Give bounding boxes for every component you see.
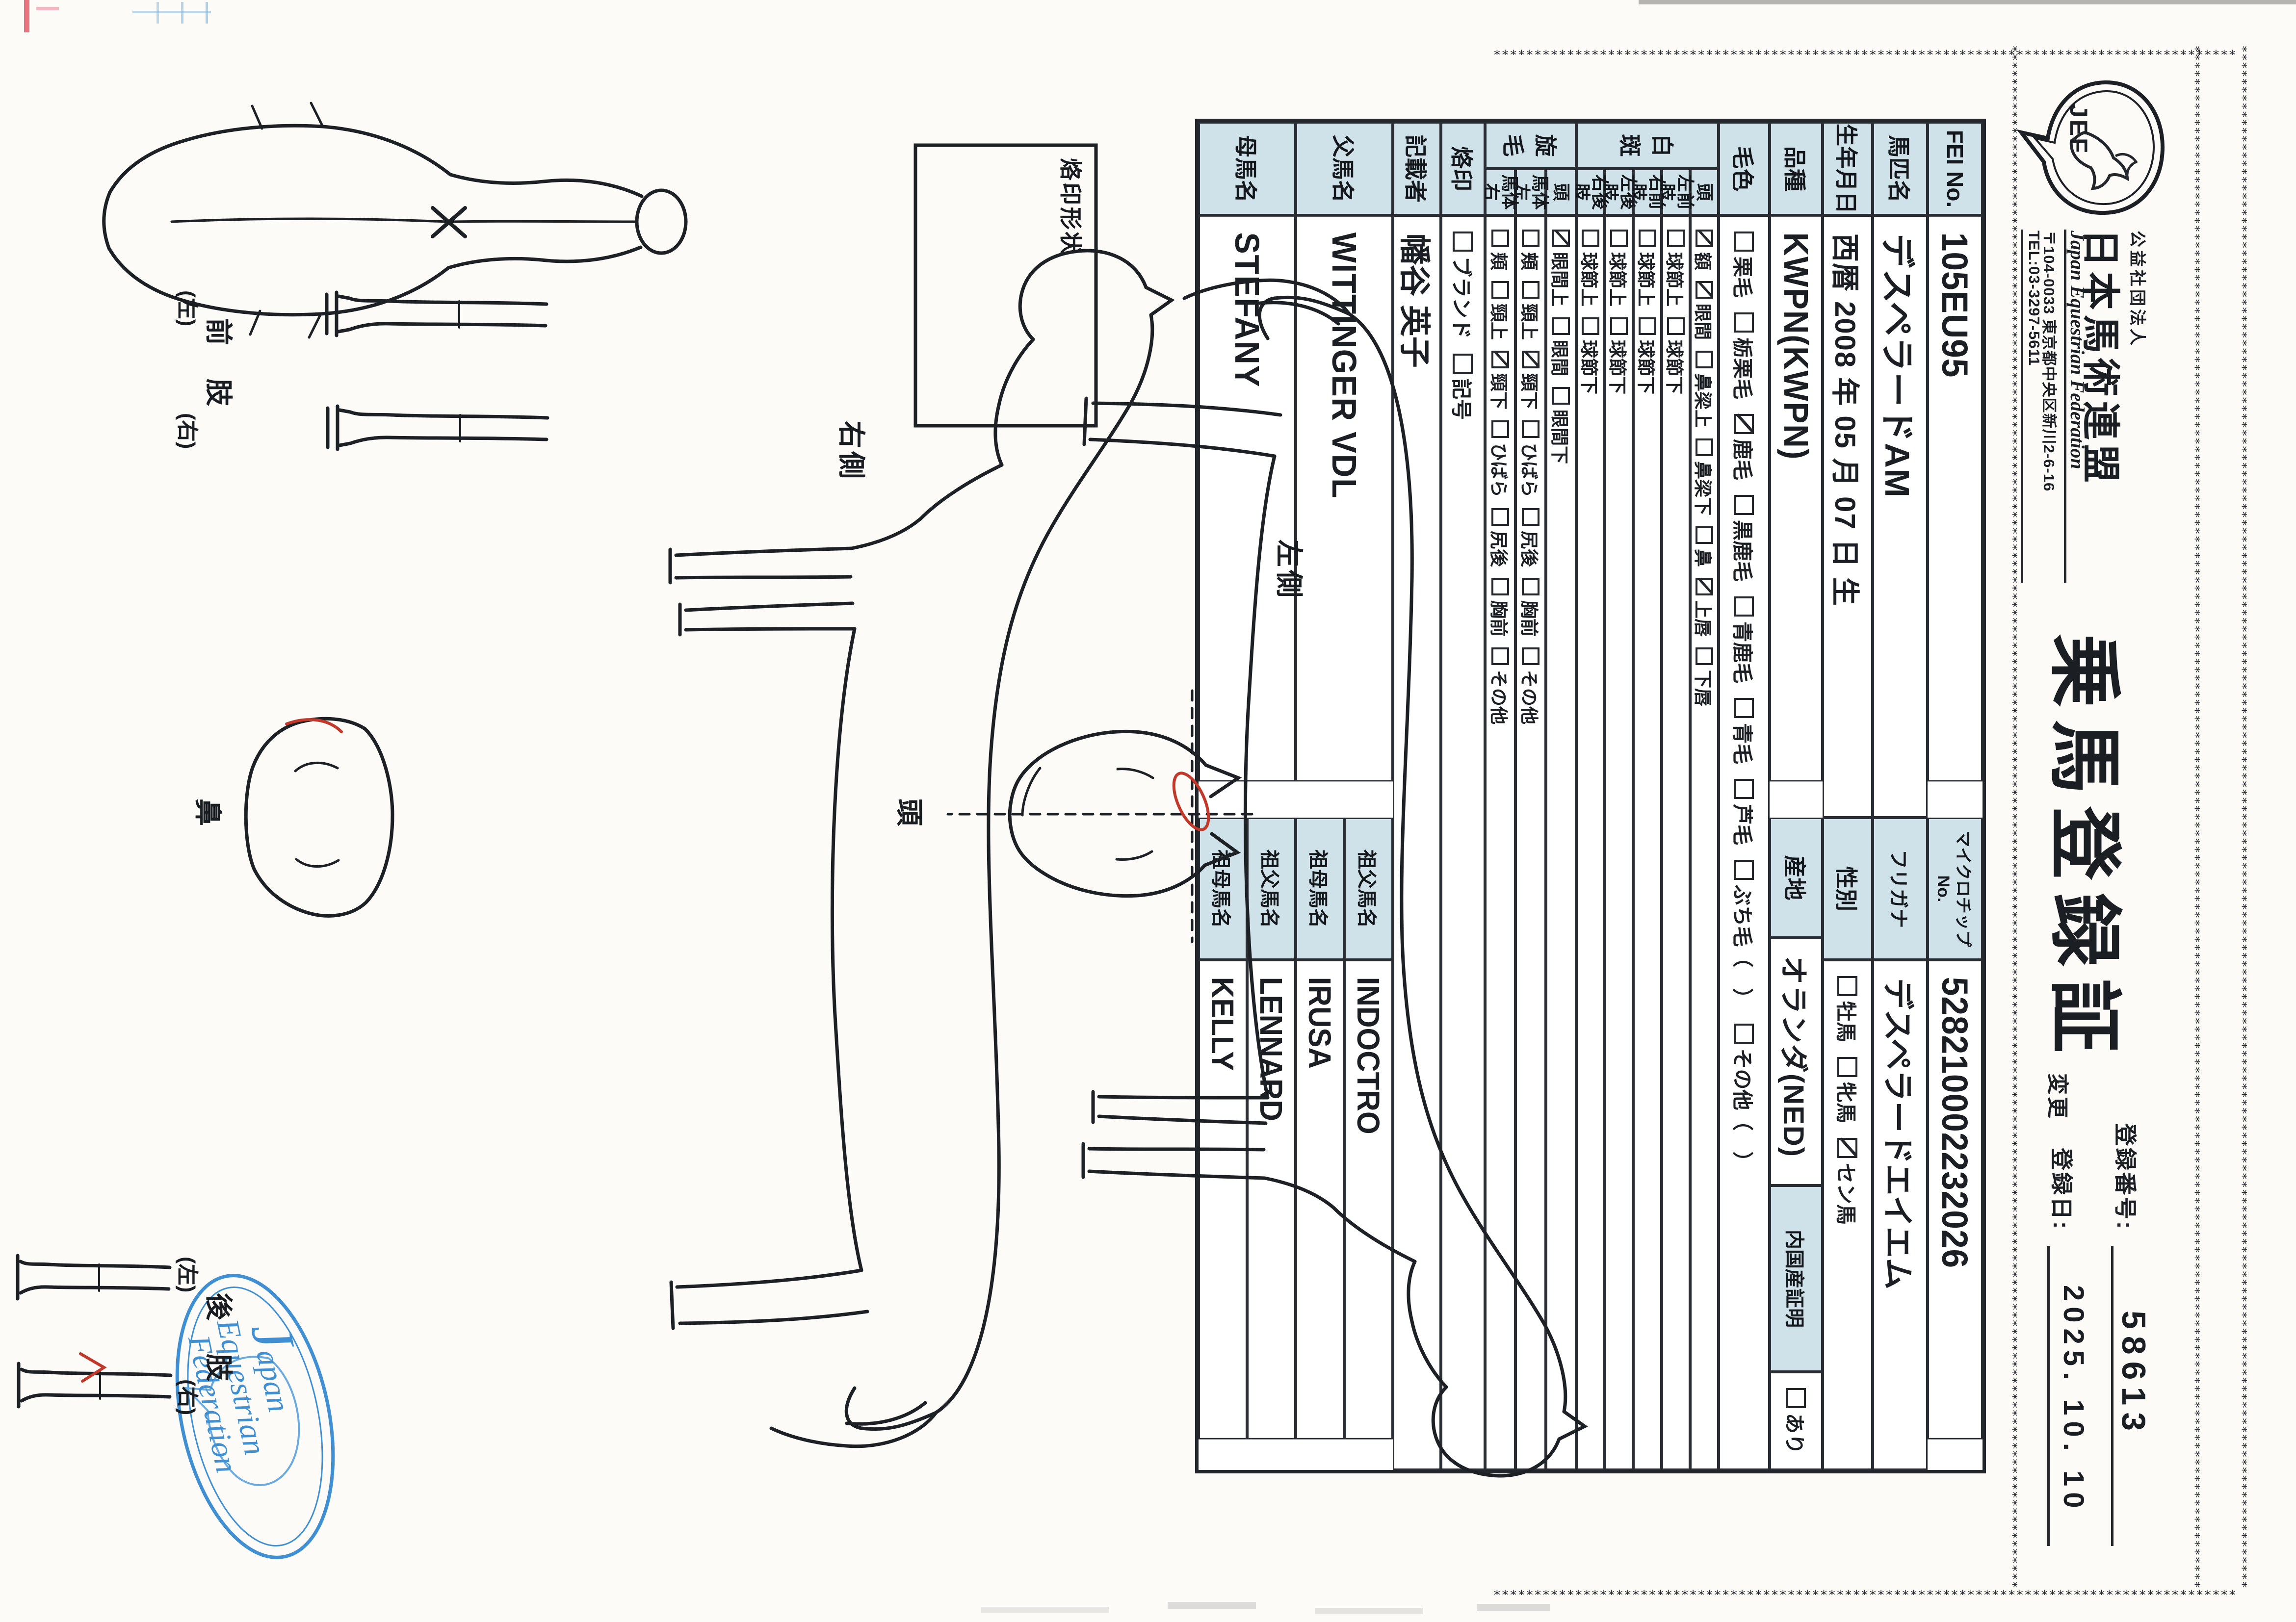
checkbox-option-label: 鼻梁下 — [1691, 461, 1718, 515]
wm-right-fore-options: 球節上球節下 — [1633, 215, 1662, 1470]
unchecked-checkbox-icon — [1582, 230, 1599, 247]
unchecked-checkbox-icon — [1838, 1057, 1858, 1077]
checkbox-option-label: 頸上 — [1517, 304, 1544, 340]
registration-date-label: 登録日: — [2047, 1148, 2079, 1231]
foreleg-pair — [327, 292, 548, 449]
checkbox-option: 尻後 — [1487, 508, 1513, 567]
unchecked-checkbox-icon — [1639, 230, 1656, 247]
muzzle-red-mark — [287, 720, 341, 732]
furigana-label: フリガナ — [1873, 818, 1928, 960]
checkbox-option-label: 鼻梁上 — [1691, 373, 1718, 428]
dam-label: 母馬名 — [1199, 122, 1296, 215]
horse-info-table: FEI No. 105EU95 マイクロチップNo. 5282100022320… — [1195, 119, 1986, 1473]
sire-dam-value: IRUSA — [1296, 960, 1344, 1440]
checked-checkbox-icon — [1696, 281, 1713, 299]
checkbox-option: 頸下 — [1517, 351, 1544, 410]
unchecked-checkbox-icon — [1453, 354, 1473, 374]
microchip-label: マイクロチップNo. — [1928, 818, 1983, 960]
jef-blue-stamp: Japan Equestrian Federation — [154, 1261, 357, 1572]
unchecked-checkbox-icon — [1696, 351, 1713, 368]
registration-date-underline — [2047, 1246, 2050, 1546]
brand-shape-label: 烙印形状 — [1056, 158, 1088, 256]
checkbox-option-label: あり — [1781, 1413, 1811, 1454]
checkbox-option: 球節上 — [1606, 230, 1632, 307]
checkbox-option-label: 頬 — [1487, 252, 1513, 270]
checkbox-option-label: 芦毛 — [1729, 804, 1759, 845]
dorsal-x-mark — [433, 208, 465, 236]
recorder-value: 幡谷 英子 — [1393, 215, 1441, 1470]
checkbox-option-label: その他 — [1517, 670, 1544, 724]
org-tel: TEL:03-3297-5611 — [2025, 231, 2043, 366]
unchecked-checkbox-icon — [1838, 976, 1858, 996]
checkbox-option: 頬 — [1487, 230, 1513, 270]
checkbox-option: ひばら — [1517, 420, 1544, 497]
unchecked-checkbox-icon — [1639, 317, 1656, 335]
unchecked-checkbox-icon — [1734, 779, 1754, 799]
checkbox-option-label: その他 — [1487, 670, 1513, 724]
sire-sire-label: 祖父馬名 — [1344, 818, 1393, 960]
wm-left-hind-options: 球節上球節下 — [1605, 215, 1633, 1470]
unchecked-checkbox-icon — [1522, 420, 1539, 438]
whorl-body-left-options: 頬頸上頸下ひばら尻後胸前その他 — [1515, 215, 1546, 1470]
org-name-en: Japan Equestrian Federation — [2066, 231, 2089, 469]
whorl-body-right-label: 馬体右 — [1485, 169, 1515, 215]
checkbox-option: 胸前 — [1517, 578, 1544, 637]
head-view-label: 頭 — [891, 798, 931, 829]
checkbox-option: 眼間上 — [1548, 230, 1574, 307]
sire-label: 父馬名 — [1296, 122, 1393, 215]
horse-name-label: 馬匹名 — [1873, 122, 1928, 215]
svg-text:Japan: Japan — [238, 1316, 320, 1416]
certificate-page: ****************************************… — [0, 0, 2296, 1622]
letterhead: JEF 公益社団法人 日本馬術連盟 Japan Equestrian Feder… — [2011, 74, 2173, 613]
checkbox-option: 上唇 — [1691, 578, 1718, 637]
checkbox-option: 芦毛 — [1729, 779, 1759, 845]
checkbox-option-label: 球節上 — [1634, 252, 1661, 307]
checkbox-option: 栗毛 — [1729, 232, 1759, 298]
unchecked-checkbox-icon — [1522, 230, 1539, 247]
checkbox-option-label: 球節下 — [1663, 340, 1689, 394]
scanned-certificate: ****************************************… — [0, 0, 2296, 1622]
checkbox-option-label: 眼間下 — [1548, 410, 1574, 464]
foreleg-right-paren: (右) — [174, 413, 205, 449]
unchecked-checkbox-icon — [1696, 647, 1713, 665]
checkbox-option: 記号 — [1448, 354, 1478, 420]
whorl-body-left-label: 馬体左 — [1515, 169, 1546, 215]
origin-label: 産地 — [1770, 818, 1823, 938]
checkbox-option-label: 額 — [1691, 252, 1718, 270]
certificate-title: 乗馬登録証 — [2037, 634, 2144, 1065]
checked-checkbox-icon — [1838, 1138, 1858, 1158]
unchecked-checkbox-icon — [1491, 230, 1509, 247]
unchecked-checkbox-icon — [1491, 281, 1509, 299]
furigana-value: デスペラードエイエム — [1873, 960, 1928, 1470]
unchecked-checkbox-icon — [1522, 578, 1539, 595]
hindleg-right-paren: (右) — [174, 1379, 205, 1415]
checkbox-option: 眼間 — [1548, 317, 1574, 376]
unchecked-checkbox-icon — [1734, 596, 1754, 617]
checkbox-option-label: ひばら — [1487, 443, 1513, 497]
domestic-option: あり — [1770, 1372, 1823, 1470]
white-markings-label: 白斑 — [1576, 122, 1719, 169]
birth-value: 西暦 2008 年 05 月 07 日 生 — [1823, 215, 1873, 818]
checked-checkbox-icon — [1491, 351, 1509, 368]
checkbox-option: セン馬 — [1833, 1138, 1863, 1225]
coat-color-options: 栗毛栃栗毛鹿毛黒鹿毛青鹿毛青毛芦毛ぶち毛（ ）その他（ ） — [1719, 215, 1770, 1470]
ornament-line-top: ****************************************… — [2235, 45, 2247, 1589]
checkbox-option: 球節上 — [1663, 230, 1689, 307]
checkbox-option-label: 栗毛 — [1729, 257, 1759, 298]
checkbox-option-label: 頬 — [1517, 252, 1544, 270]
hindleg-label: 後 肢 — [201, 1293, 240, 1384]
checkbox-option: あり — [1781, 1388, 1811, 1454]
unchecked-checkbox-icon — [1522, 647, 1539, 665]
svg-text:JEF: JEF — [2065, 104, 2092, 155]
unchecked-checkbox-icon — [1734, 860, 1754, 880]
horse-name-value: デスペラードAM — [1873, 215, 1928, 818]
sex-label: 性別 — [1823, 818, 1873, 960]
wm-right-hind-label: 右後肢 — [1576, 169, 1605, 215]
checkbox-option: 球節下 — [1577, 317, 1604, 394]
registration-number-underline — [2111, 1246, 2113, 1546]
unchecked-checkbox-icon — [1491, 420, 1509, 438]
origin-value: オランダ(NED) — [1770, 938, 1823, 1185]
whorl-label: 旋毛 — [1485, 122, 1576, 169]
unchecked-checkbox-icon — [1667, 317, 1685, 335]
checkbox-option-label: 鼻 — [1691, 549, 1718, 567]
brand-label: 烙印 — [1441, 122, 1485, 215]
checkbox-option-label: セン馬 — [1833, 1163, 1863, 1225]
checkbox-option-label: 眼間 — [1691, 304, 1718, 340]
checkbox-option: ひばら — [1487, 420, 1513, 497]
dam-dam-value: KELLY — [1199, 960, 1247, 1440]
ornament-line-left: ****************************************… — [1494, 43, 2236, 55]
checkbox-option-label: 胸前 — [1487, 600, 1513, 637]
recorder-label: 記載者 — [1393, 122, 1441, 215]
checkbox-option-label: 球節下 — [1606, 340, 1632, 394]
checkbox-option-label: ブランド — [1448, 257, 1478, 339]
wm-left-fore-options: 球節上球節下 — [1662, 215, 1690, 1470]
checkbox-option-label: 頸下 — [1487, 373, 1513, 410]
registration-number-label: 登録番号: — [2111, 1123, 2143, 1231]
microchip-value: 528210002232026 — [1928, 960, 1983, 1440]
checkbox-option-label: 尻後 — [1487, 531, 1513, 567]
checkbox-option: 牡馬 — [1833, 976, 1863, 1042]
sire-dam-label: 祖母馬名 — [1296, 818, 1344, 960]
foreleg-label: 前 肢 — [201, 318, 240, 409]
domestic-label: 内国産証明 — [1770, 1185, 1823, 1372]
checkbox-option: その他 — [1487, 647, 1513, 724]
checkbox-option: ブランド — [1448, 232, 1478, 339]
hindleg-left-paren: (左) — [174, 1257, 205, 1292]
checkbox-option: 黒鹿毛 — [1729, 495, 1759, 582]
unchecked-checkbox-icon — [1786, 1388, 1806, 1408]
checkbox-option-label: 上唇 — [1691, 600, 1718, 637]
dam-value: STEFANY — [1199, 215, 1296, 781]
unchecked-checkbox-icon — [1610, 230, 1628, 247]
checkbox-option-label: 球節下 — [1634, 340, 1661, 394]
whorl-body-right-options: 頬頸上頸下ひばら尻後胸前その他 — [1485, 215, 1515, 1470]
foreleg-left-paren: (左) — [174, 290, 205, 326]
checkbox-option-label: 球節下 — [1577, 340, 1604, 394]
ornament-line-header-top: ****************************************… — [2188, 45, 2200, 1589]
checkbox-option: 額 — [1691, 230, 1718, 270]
fei-label: FEI No. — [1928, 122, 1983, 215]
muzzle-view-label: 鼻 — [190, 798, 230, 829]
checkbox-option-label: その他（ ） — [1729, 1049, 1759, 1172]
checkbox-option: 鼻梁下 — [1691, 438, 1718, 515]
checkbox-option: 青鹿毛 — [1729, 596, 1759, 683]
checkbox-option-label: 下唇 — [1691, 670, 1718, 706]
registration-date: 2025. 10. 10 — [2057, 1285, 2090, 1514]
unchecked-checkbox-icon — [1491, 578, 1509, 595]
checkbox-option: 球節下 — [1663, 317, 1689, 394]
whorl-head-label: 頭 — [1546, 169, 1576, 215]
dam-sire-label: 祖父馬名 — [1247, 818, 1296, 960]
unchecked-checkbox-icon — [1734, 495, 1754, 515]
right-side-horse-outline — [670, 251, 1172, 1446]
right-side-label: 右側 — [834, 421, 873, 482]
checkbox-option: 尻後 — [1517, 508, 1544, 567]
dam-sire-value: LENNARD — [1247, 960, 1296, 1440]
breed-label: 品種 — [1770, 122, 1823, 215]
unchecked-checkbox-icon — [1734, 312, 1754, 333]
coat-color-label: 毛色 — [1719, 122, 1770, 215]
checkbox-option-label: 青毛 — [1729, 723, 1759, 764]
checked-checkbox-icon — [1522, 351, 1539, 368]
unchecked-checkbox-icon — [1734, 698, 1754, 718]
letterhead-rule-top — [2064, 230, 2066, 583]
checkbox-option: ぶち毛（ ） — [1729, 860, 1759, 1008]
checkbox-option: 鹿毛 — [1729, 414, 1759, 480]
checkbox-option-label: 球節上 — [1577, 252, 1604, 307]
checked-checkbox-icon — [1696, 230, 1713, 247]
checkbox-option-label: ひばら — [1517, 443, 1544, 497]
checkbox-option: 頸下 — [1487, 351, 1513, 410]
checkbox-option-label: 球節上 — [1606, 252, 1632, 307]
unchecked-checkbox-icon — [1522, 508, 1539, 526]
checkbox-option-label: 眼間上 — [1548, 252, 1574, 307]
checkbox-option: 頬 — [1517, 230, 1544, 270]
registration-number: 58613 — [2114, 1311, 2153, 1438]
unchecked-checkbox-icon — [1734, 232, 1754, 252]
checkbox-option: 球節下 — [1634, 317, 1661, 394]
letterhead-rule-bottom — [2021, 230, 2023, 583]
checkbox-option: 頸上 — [1487, 281, 1513, 340]
brand-options: ブランド記号 — [1441, 215, 1485, 1470]
checked-checkbox-icon — [1552, 230, 1570, 247]
hindleg-pair — [18, 1256, 171, 1407]
whorl-head-options: 眼間上眼間眼間下 — [1546, 215, 1576, 1470]
checkbox-option-label: 眼間 — [1548, 340, 1574, 376]
change-label: 変更 — [2044, 1073, 2075, 1120]
unchecked-checkbox-icon — [1491, 647, 1509, 665]
checkbox-option-label: 球節上 — [1663, 252, 1689, 307]
sire-value: WITTINGER VDL — [1296, 215, 1393, 781]
checkbox-option: 球節下 — [1606, 317, 1632, 394]
checkbox-option-label: ぶち毛（ ） — [1729, 885, 1759, 1008]
checkbox-option: その他 — [1517, 647, 1544, 724]
unchecked-checkbox-icon — [1453, 232, 1473, 252]
fei-value: 105EU95 — [1928, 215, 1983, 781]
unchecked-checkbox-icon — [1491, 508, 1509, 526]
checkbox-option-label: 鹿毛 — [1729, 439, 1759, 480]
checkbox-option-label: 青鹿毛 — [1729, 621, 1759, 683]
breed-value: KWPN(KWPN) — [1770, 215, 1823, 781]
checked-checkbox-icon — [1696, 578, 1713, 595]
unchecked-checkbox-icon — [1552, 387, 1570, 405]
sire-sire-value: INDOCTRO — [1344, 960, 1393, 1440]
muzzle-view — [246, 719, 392, 916]
checkbox-option: 鼻 — [1691, 526, 1718, 567]
checked-checkbox-icon — [1734, 414, 1754, 434]
birth-label: 生年月日 — [1823, 122, 1873, 215]
unchecked-checkbox-icon — [1582, 317, 1599, 335]
wm-head-options: 額眼間鼻梁上鼻梁下鼻上唇下唇 — [1690, 215, 1719, 1470]
checkbox-option: 牝馬 — [1833, 1057, 1863, 1123]
checkbox-option-label: 栃栗毛 — [1729, 337, 1759, 399]
checkbox-option: 鼻梁上 — [1691, 351, 1718, 428]
unchecked-checkbox-icon — [1696, 526, 1713, 544]
jef-logo: JEF — [2016, 74, 2168, 221]
checkbox-option-label: 牡馬 — [1833, 1001, 1863, 1042]
checkbox-option: 球節上 — [1634, 230, 1661, 307]
hindleg-red-mark — [80, 1354, 104, 1381]
checkbox-option: 頸上 — [1517, 281, 1544, 340]
checkbox-option-label: 牝馬 — [1833, 1082, 1863, 1123]
unchecked-checkbox-icon — [1734, 1024, 1754, 1044]
checkbox-option: 眼間 — [1691, 281, 1718, 340]
unchecked-checkbox-icon — [1610, 317, 1628, 335]
checkbox-option-label: 記号 — [1448, 379, 1478, 420]
unchecked-checkbox-icon — [1522, 281, 1539, 299]
checkbox-option: 眼間下 — [1548, 387, 1574, 464]
wm-right-hind-options: 球節上球節下 — [1576, 215, 1605, 1470]
unchecked-checkbox-icon — [1667, 230, 1685, 247]
checkbox-option: その他（ ） — [1729, 1024, 1759, 1172]
unchecked-checkbox-icon — [1696, 438, 1713, 456]
checkbox-option-label: 尻後 — [1517, 531, 1544, 567]
checkbox-option: 栃栗毛 — [1729, 312, 1759, 399]
checkbox-option-label: 黒鹿毛 — [1729, 520, 1759, 582]
checkbox-option-label: 胸前 — [1517, 600, 1544, 637]
checkbox-option: 下唇 — [1691, 647, 1718, 706]
checkbox-option: 球節上 — [1577, 230, 1604, 307]
checkbox-option: 青毛 — [1729, 698, 1759, 764]
checkbox-option: 胸前 — [1487, 578, 1513, 637]
checkbox-option-label: 頸上 — [1487, 304, 1513, 340]
left-side-label: 左側 — [1271, 540, 1311, 600]
ornament-line-right: ****************************************… — [1494, 1583, 2236, 1595]
dam-dam-label: 祖母馬名 — [1199, 818, 1247, 960]
unchecked-checkbox-icon — [1552, 317, 1570, 335]
checkbox-option-label: 頸下 — [1517, 373, 1544, 410]
sex-options: 牡馬牝馬セン馬 — [1823, 960, 1873, 1470]
